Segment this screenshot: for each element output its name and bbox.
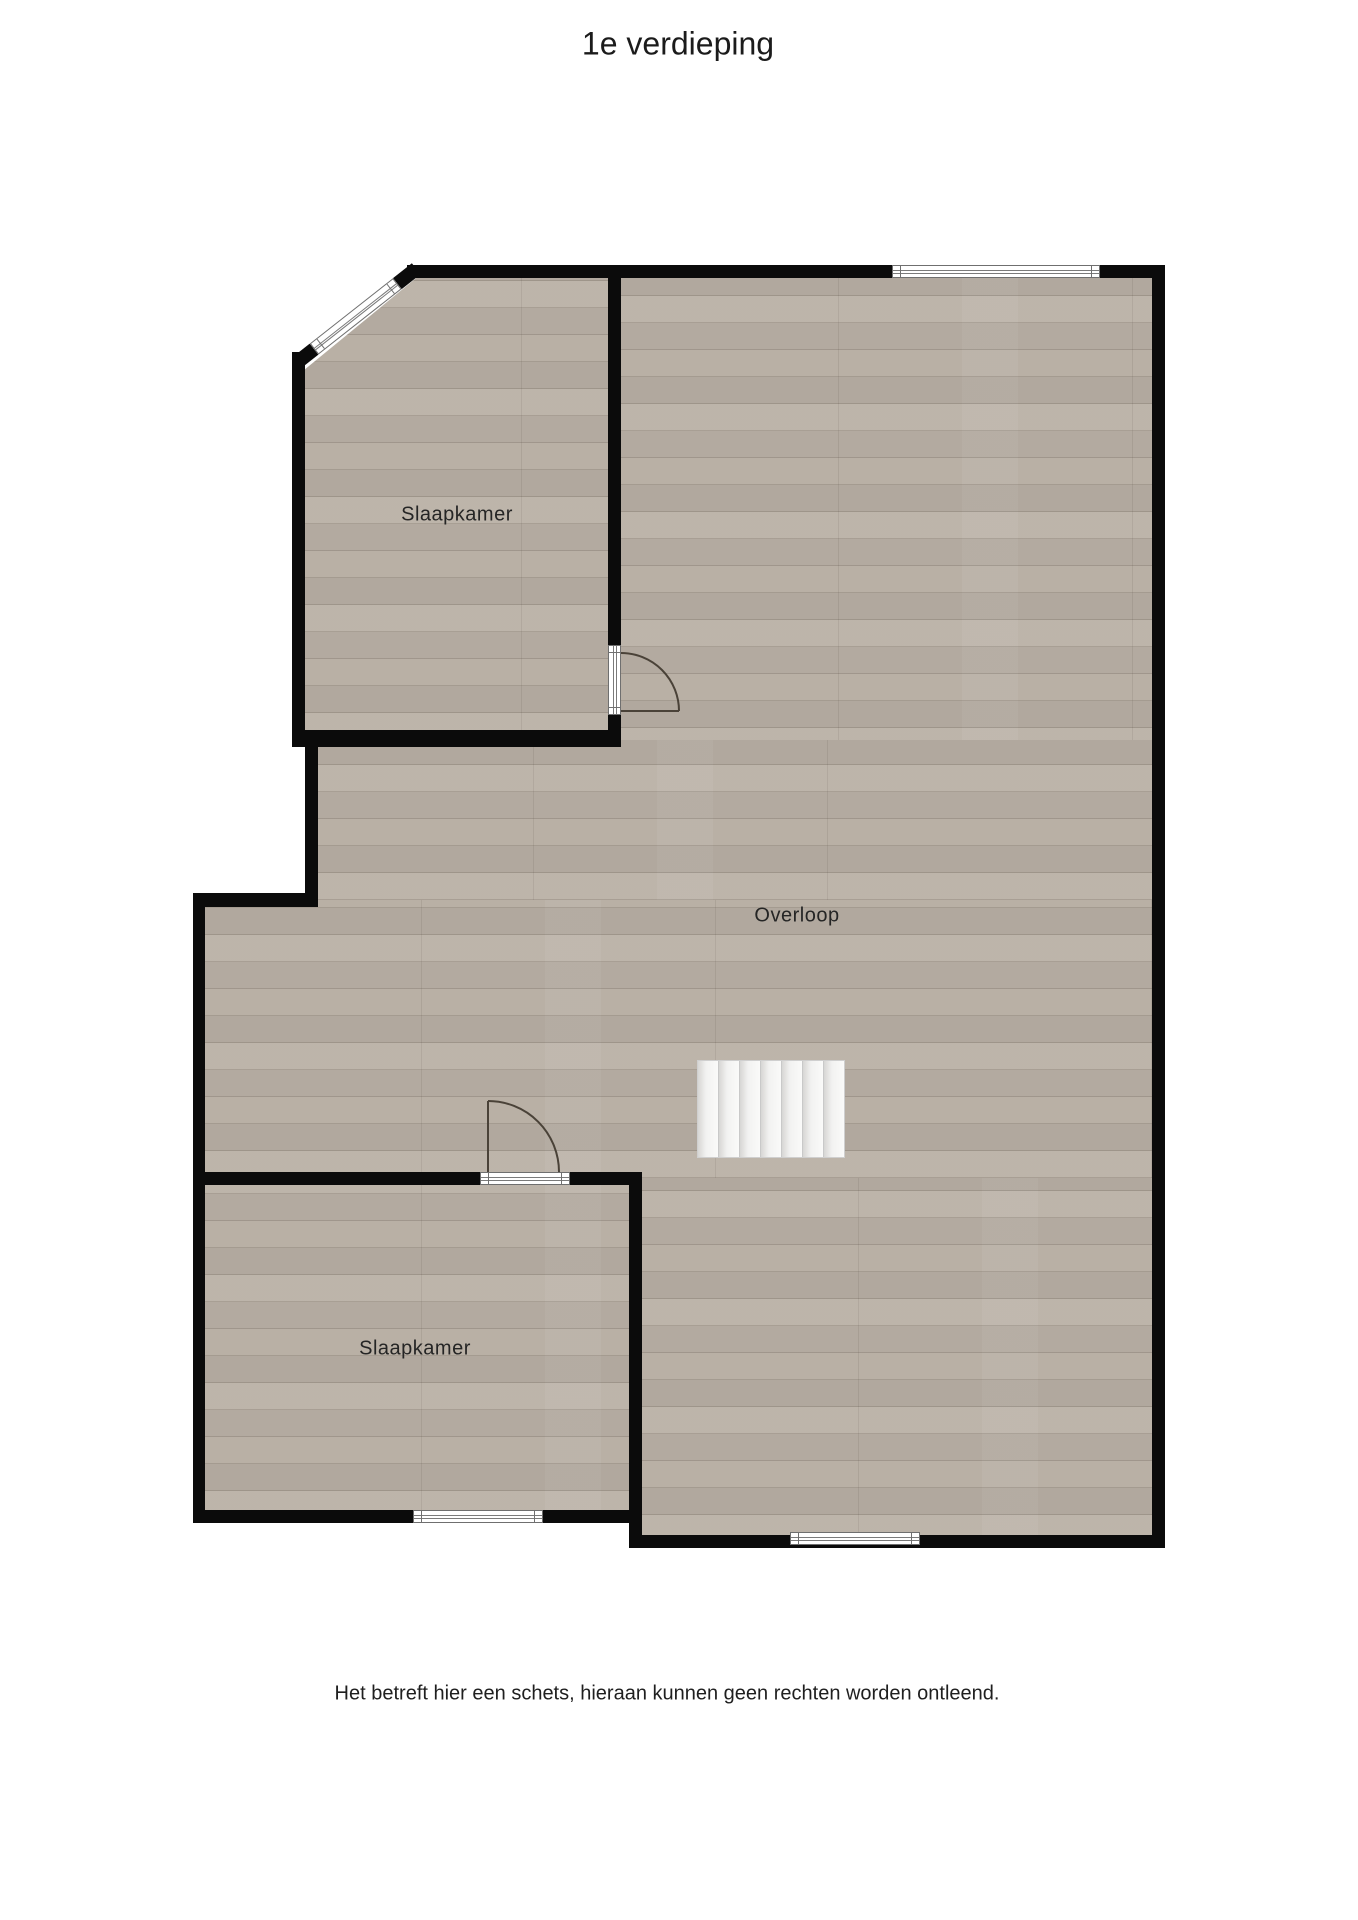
- wall-bedroom-top-left: [292, 352, 305, 747]
- staircase: [697, 1060, 845, 1158]
- room-label-bedroom-top: Slaapkamer: [401, 504, 513, 527]
- page-title: 1e verdieping: [582, 26, 774, 63]
- window-top-right: [892, 265, 1100, 278]
- room-label-landing: Overloop: [754, 905, 839, 928]
- wall-landing-left: [305, 747, 318, 907]
- stair-tread: [718, 1061, 739, 1157]
- floor-landing-mid: [310, 740, 1160, 900]
- door-opening-bedroom-top: [608, 645, 621, 715]
- wall-divider-upper: [608, 265, 621, 645]
- floor-landing-bottom-right: [635, 1178, 1160, 1542]
- stair-tread: [802, 1061, 823, 1157]
- stair-tread: [781, 1061, 802, 1157]
- wall-left-lower: [193, 893, 205, 1523]
- stair-tread: [698, 1061, 718, 1157]
- stair-tread: [760, 1061, 781, 1157]
- wall-step-left: [193, 893, 318, 907]
- door-opening-bedroom-bottom: [480, 1172, 570, 1185]
- wall-bedroom-bottom-top-left: [193, 1172, 480, 1185]
- window-landing-bottom: [790, 1532, 920, 1545]
- stair-tread: [823, 1061, 844, 1157]
- window-bedroom-bottom: [413, 1510, 543, 1523]
- wall-divider-lower: [608, 715, 621, 747]
- floor-landing-top-right: [615, 270, 1160, 755]
- wall-bedroom-bottom-top-right: [570, 1172, 642, 1185]
- wall-right: [1152, 265, 1165, 1548]
- floor-landing-wide: [198, 900, 1160, 1178]
- stair-tread: [739, 1061, 760, 1157]
- wall-step-right: [629, 1172, 642, 1548]
- room-label-bedroom-bottom: Slaapkamer: [359, 1338, 471, 1361]
- floorplan-page: { "title": "1e verdieping", "rooms": [ {…: [0, 0, 1358, 1920]
- disclaimer-text: Het betreft hier een schets, hieraan kun…: [335, 1683, 1000, 1706]
- wall-bedroom-top-bottom: [292, 730, 621, 747]
